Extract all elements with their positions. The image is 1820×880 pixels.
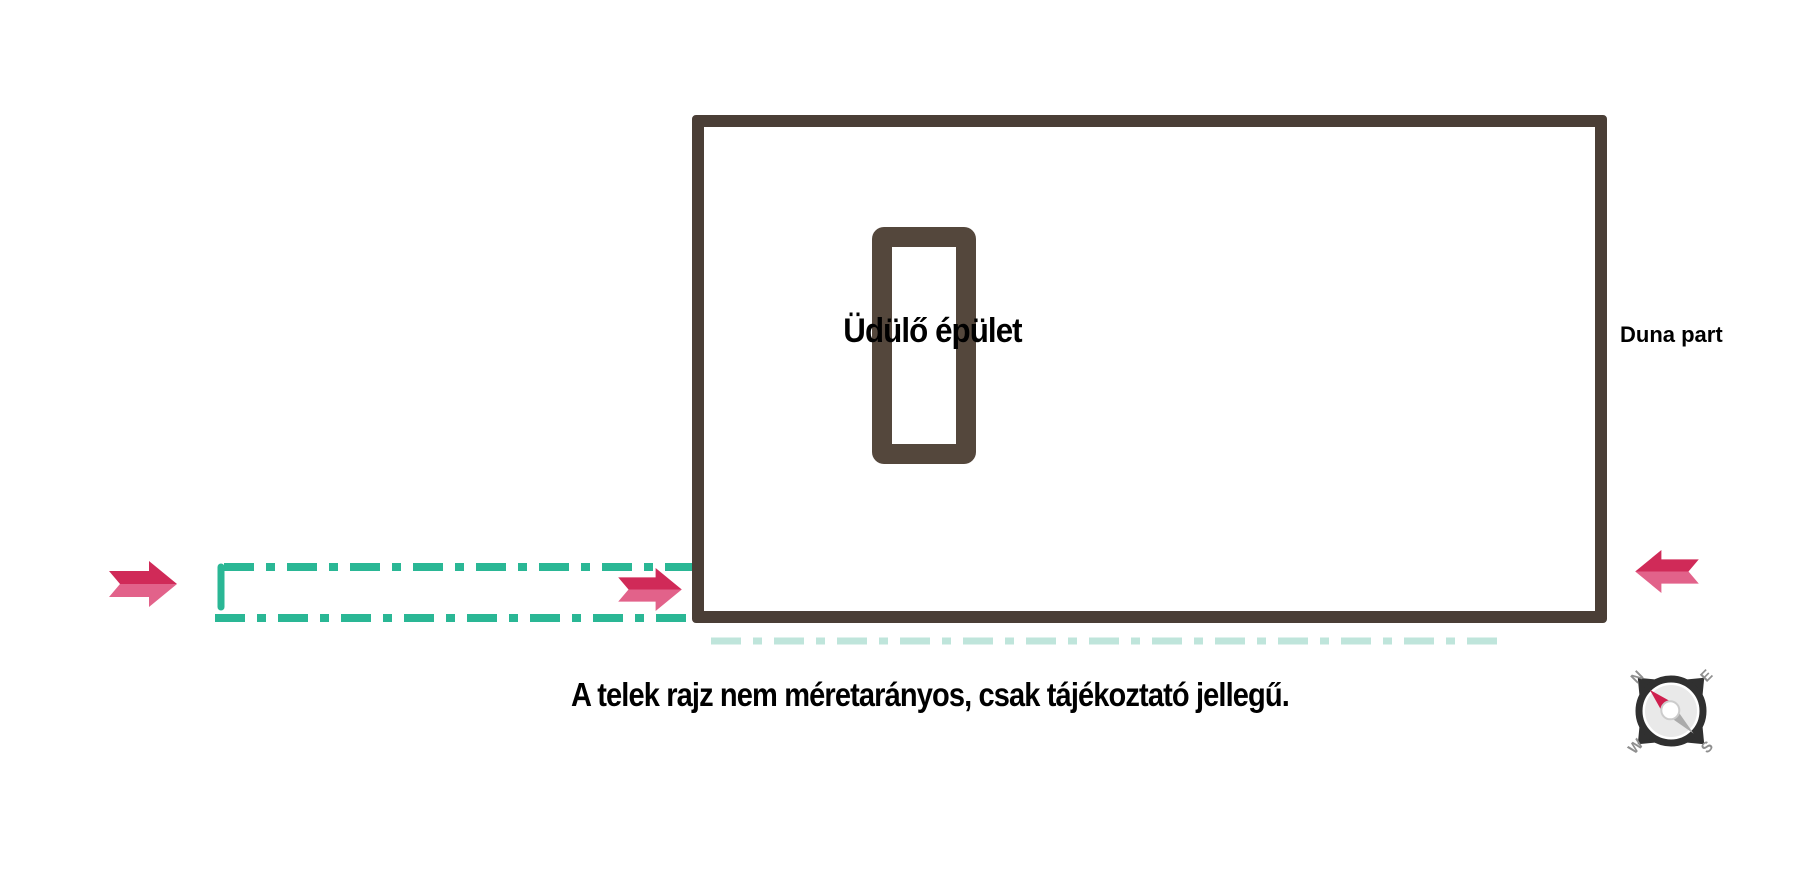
disclaimer-caption: A telek rajz nem méretarányos, csak tájé… (402, 676, 1458, 714)
building-label: Üdülő épület (774, 312, 1091, 351)
compass-south-label: S (1698, 738, 1717, 757)
shoreline-dashed-line (708, 634, 1508, 648)
compass-icon: N E S W (1611, 651, 1731, 771)
access-strip-arrow-icon (618, 568, 682, 611)
entrance-arrow-left-icon (109, 561, 177, 607)
site-plan-canvas: Üdülő épület Duna part A telek rajz nem … (0, 0, 1820, 880)
plot-boundary-outline (692, 115, 1607, 623)
shore-label: Duna part (1620, 322, 1723, 348)
shore-arrow-icon (1635, 550, 1699, 593)
